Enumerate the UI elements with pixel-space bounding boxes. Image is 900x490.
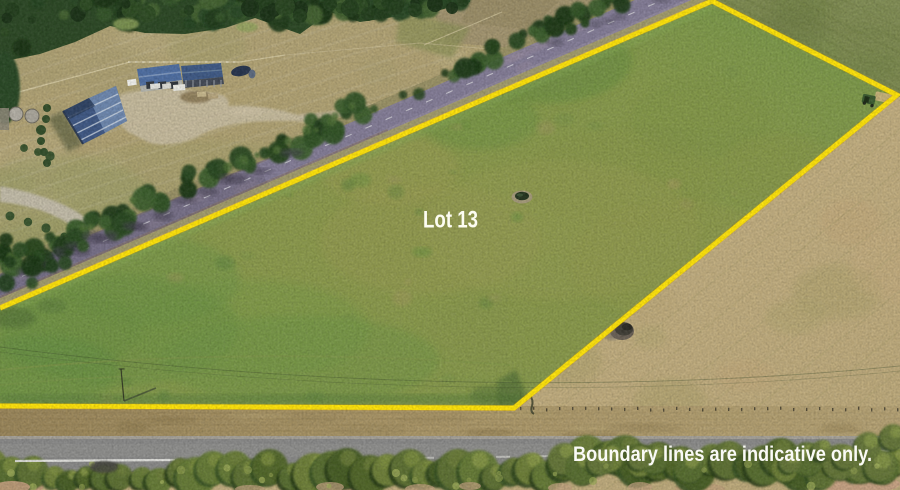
svg-text:Lot 13: Lot 13	[423, 207, 478, 234]
svg-text:Boundary lines are indicative: Boundary lines are indicative only.	[573, 442, 872, 466]
